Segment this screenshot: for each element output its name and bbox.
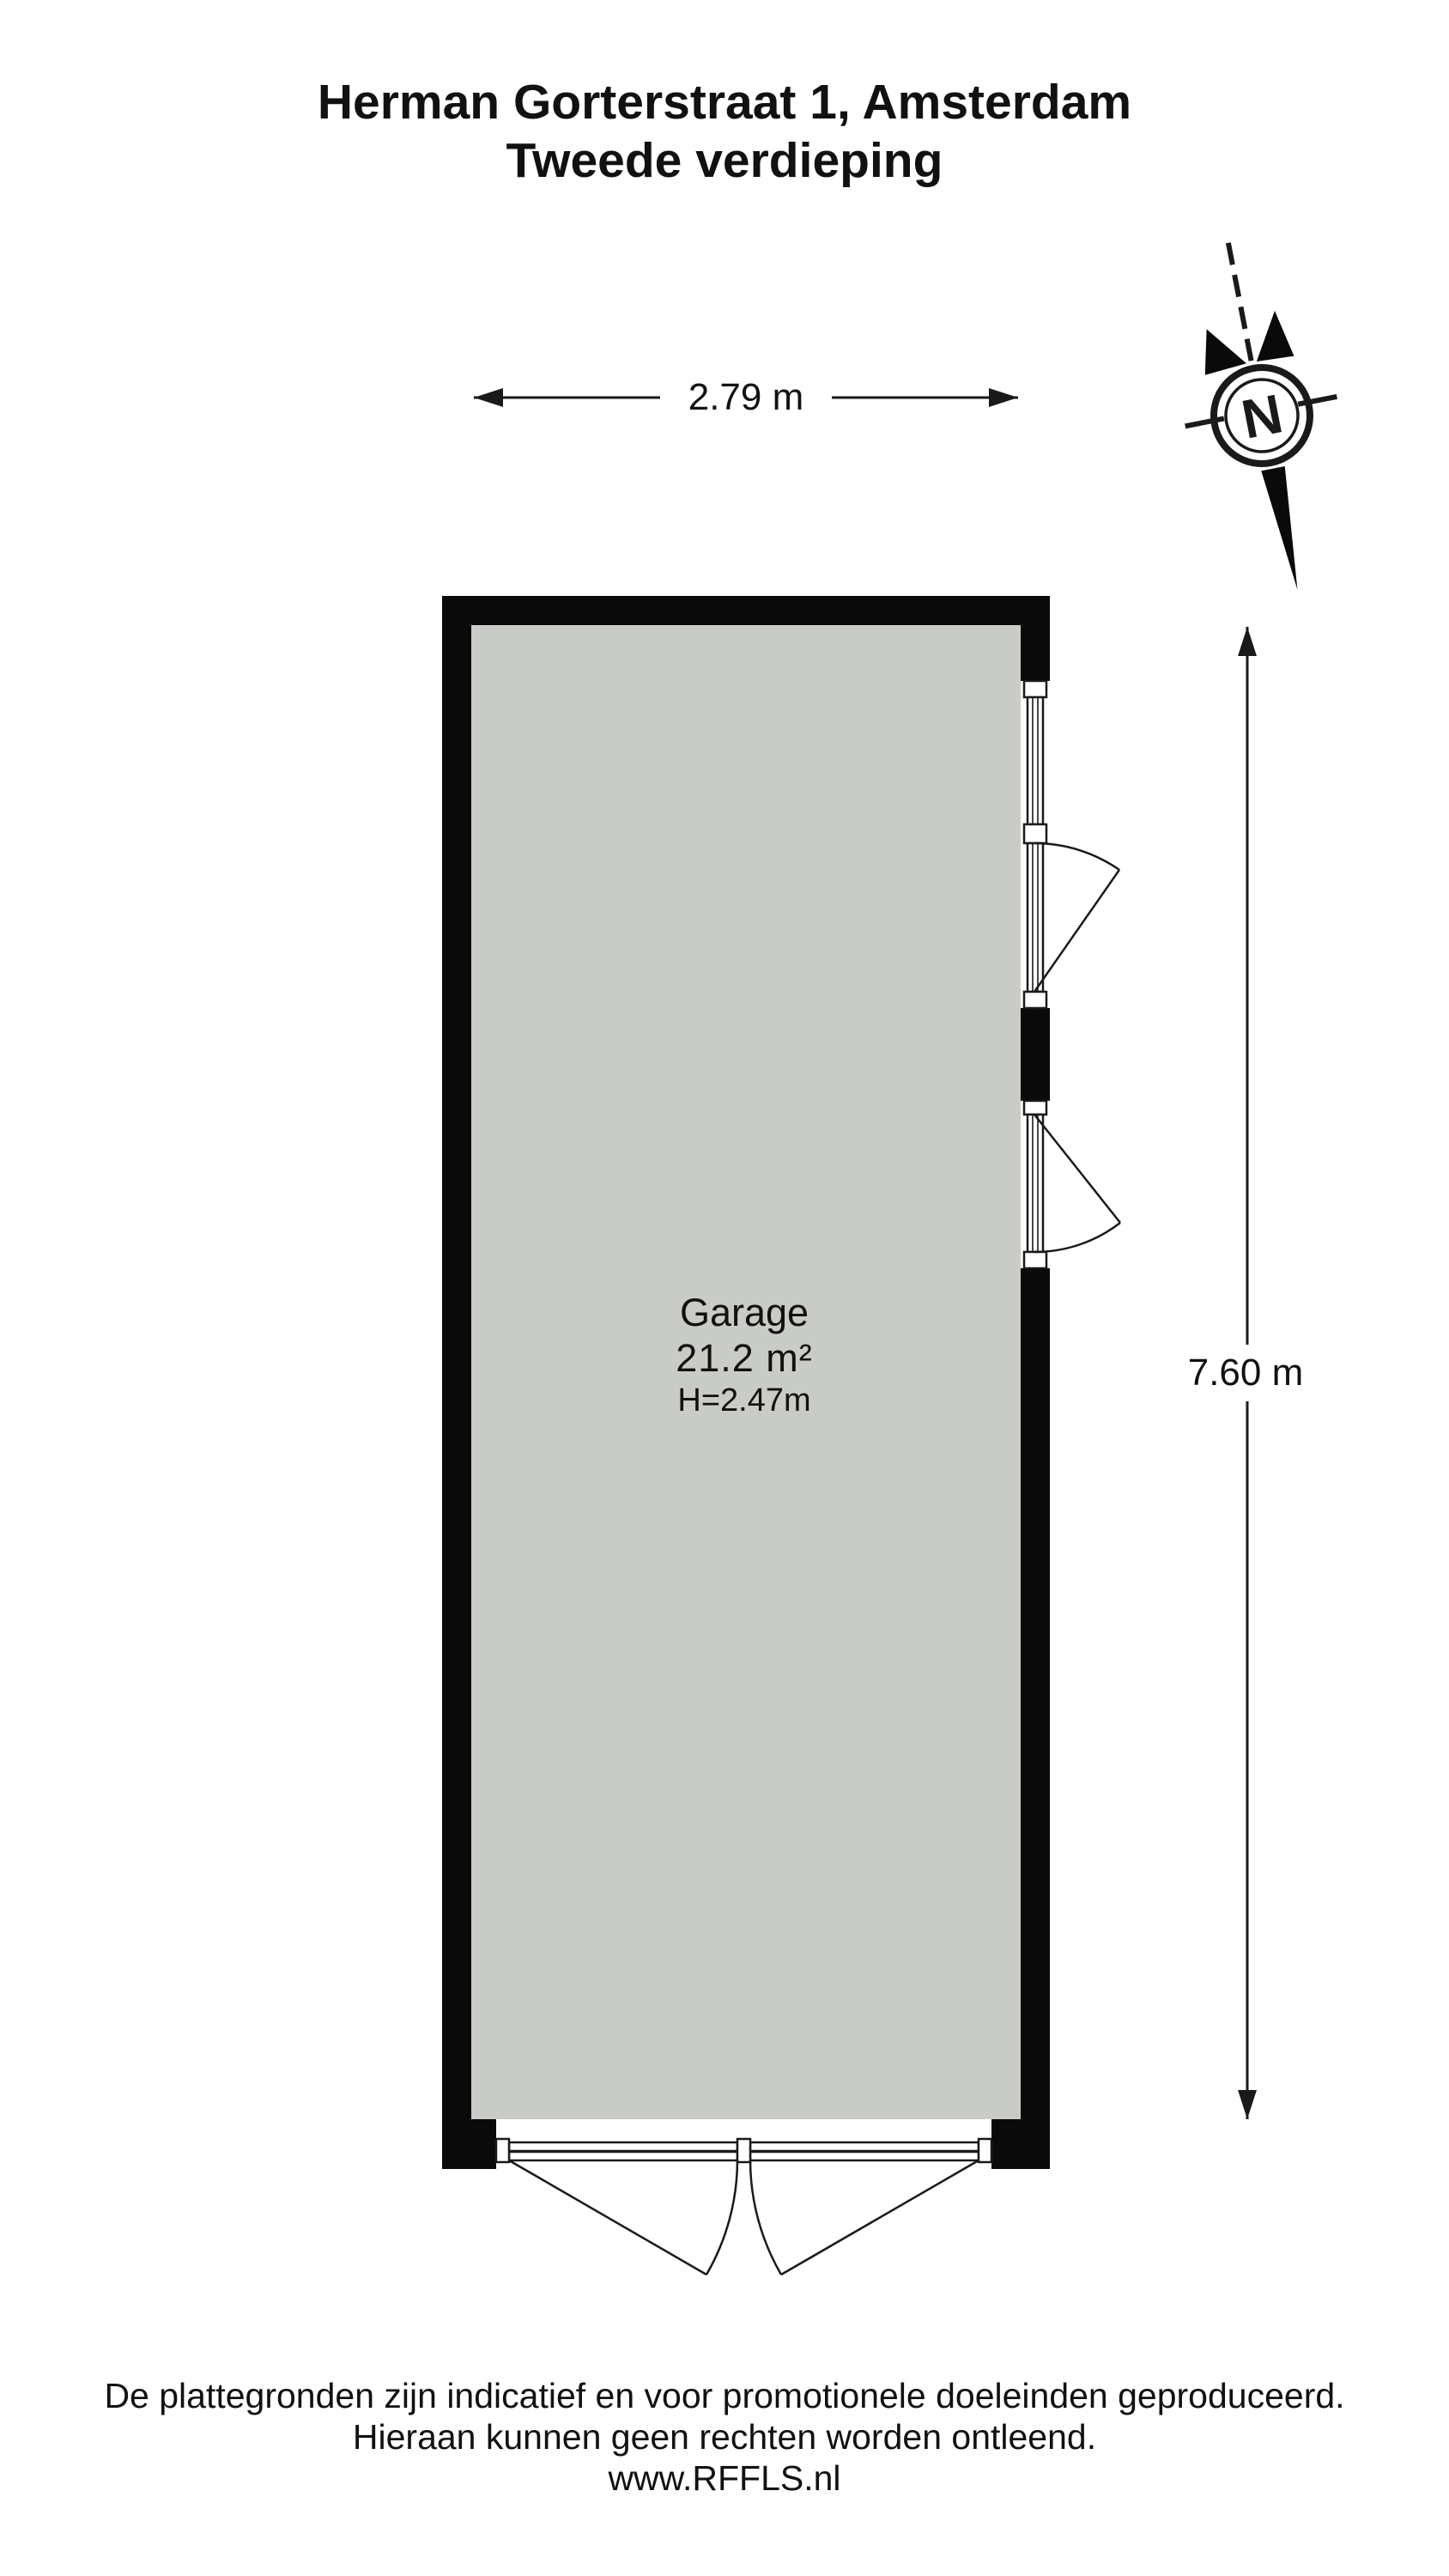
door-leaf-open-left <box>509 2160 706 2275</box>
room-ceiling-height: H=2.47m <box>573 1381 916 1420</box>
page-title-floor: Tweede verdieping <box>0 131 1449 190</box>
compass-wing-left <box>1197 323 1247 375</box>
room-label: Garage 21.2 m² H=2.47m <box>573 1290 916 1420</box>
compass-north-icon: N <box>1153 228 1372 605</box>
page-title: Herman Gorterstraat 1, Amsterdam Tweede … <box>0 73 1449 190</box>
disclaimer-line-2: Hieraan kunnen geen rechten worden ontle… <box>0 2416 1449 2458</box>
page-title-address: Herman Gorterstraat 1, Amsterdam <box>0 73 1449 131</box>
window-lower <box>1024 1101 1120 1268</box>
door-leaf-open-right <box>781 2160 979 2275</box>
arrow-left-icon <box>474 388 503 407</box>
disclaimer-footer: De plattegronden zijn indicatief en voor… <box>0 2375 1449 2499</box>
door-leaf-closed-right-outer <box>750 2142 979 2151</box>
footer-website: www.RFFLS.nl <box>0 2458 1449 2499</box>
height-dimension-label: 7.60 m <box>1160 1345 1331 1401</box>
door-leaf-closed-left-inner <box>509 2152 737 2160</box>
door-post-left <box>496 2139 509 2162</box>
width-dimension-label: 2.79 m <box>660 375 832 420</box>
window-glazing-casement <box>1028 843 1043 992</box>
room-area: 21.2 m² <box>573 1336 916 1381</box>
room-name: Garage <box>573 1290 916 1336</box>
window-frame-block <box>1024 681 1046 697</box>
floorplan-page: N Herman Gorterstraat 1, Amsterdam Tweed… <box>0 0 1449 2576</box>
double-door <box>496 2139 991 2275</box>
disclaimer-line-1: De plattegronden zijn indicatief en voor… <box>0 2375 1449 2416</box>
door-leaf-closed-left-outer <box>509 2142 737 2151</box>
door-swing-arc-right <box>750 2160 781 2275</box>
window-sill-block <box>1024 992 1046 1008</box>
window-mullion-block <box>1024 824 1046 843</box>
arrow-up-icon <box>1238 627 1257 656</box>
window-glazing-fixed <box>1028 697 1043 824</box>
door-swing-arc-left <box>706 2160 737 2275</box>
door-post-center <box>737 2139 750 2162</box>
arrow-right-icon <box>989 388 1018 407</box>
arrow-down-icon <box>1238 2090 1257 2119</box>
door-post-right <box>979 2139 991 2162</box>
window-sill-block <box>1024 1252 1046 1268</box>
window-frame-block <box>1024 1101 1046 1115</box>
compass-south-tail <box>1261 466 1308 592</box>
window-upper <box>1024 681 1119 1008</box>
door-leaf-closed-right-inner <box>750 2152 979 2160</box>
window-glazing-casement <box>1028 1115 1043 1252</box>
compass-wing-right <box>1248 309 1294 363</box>
